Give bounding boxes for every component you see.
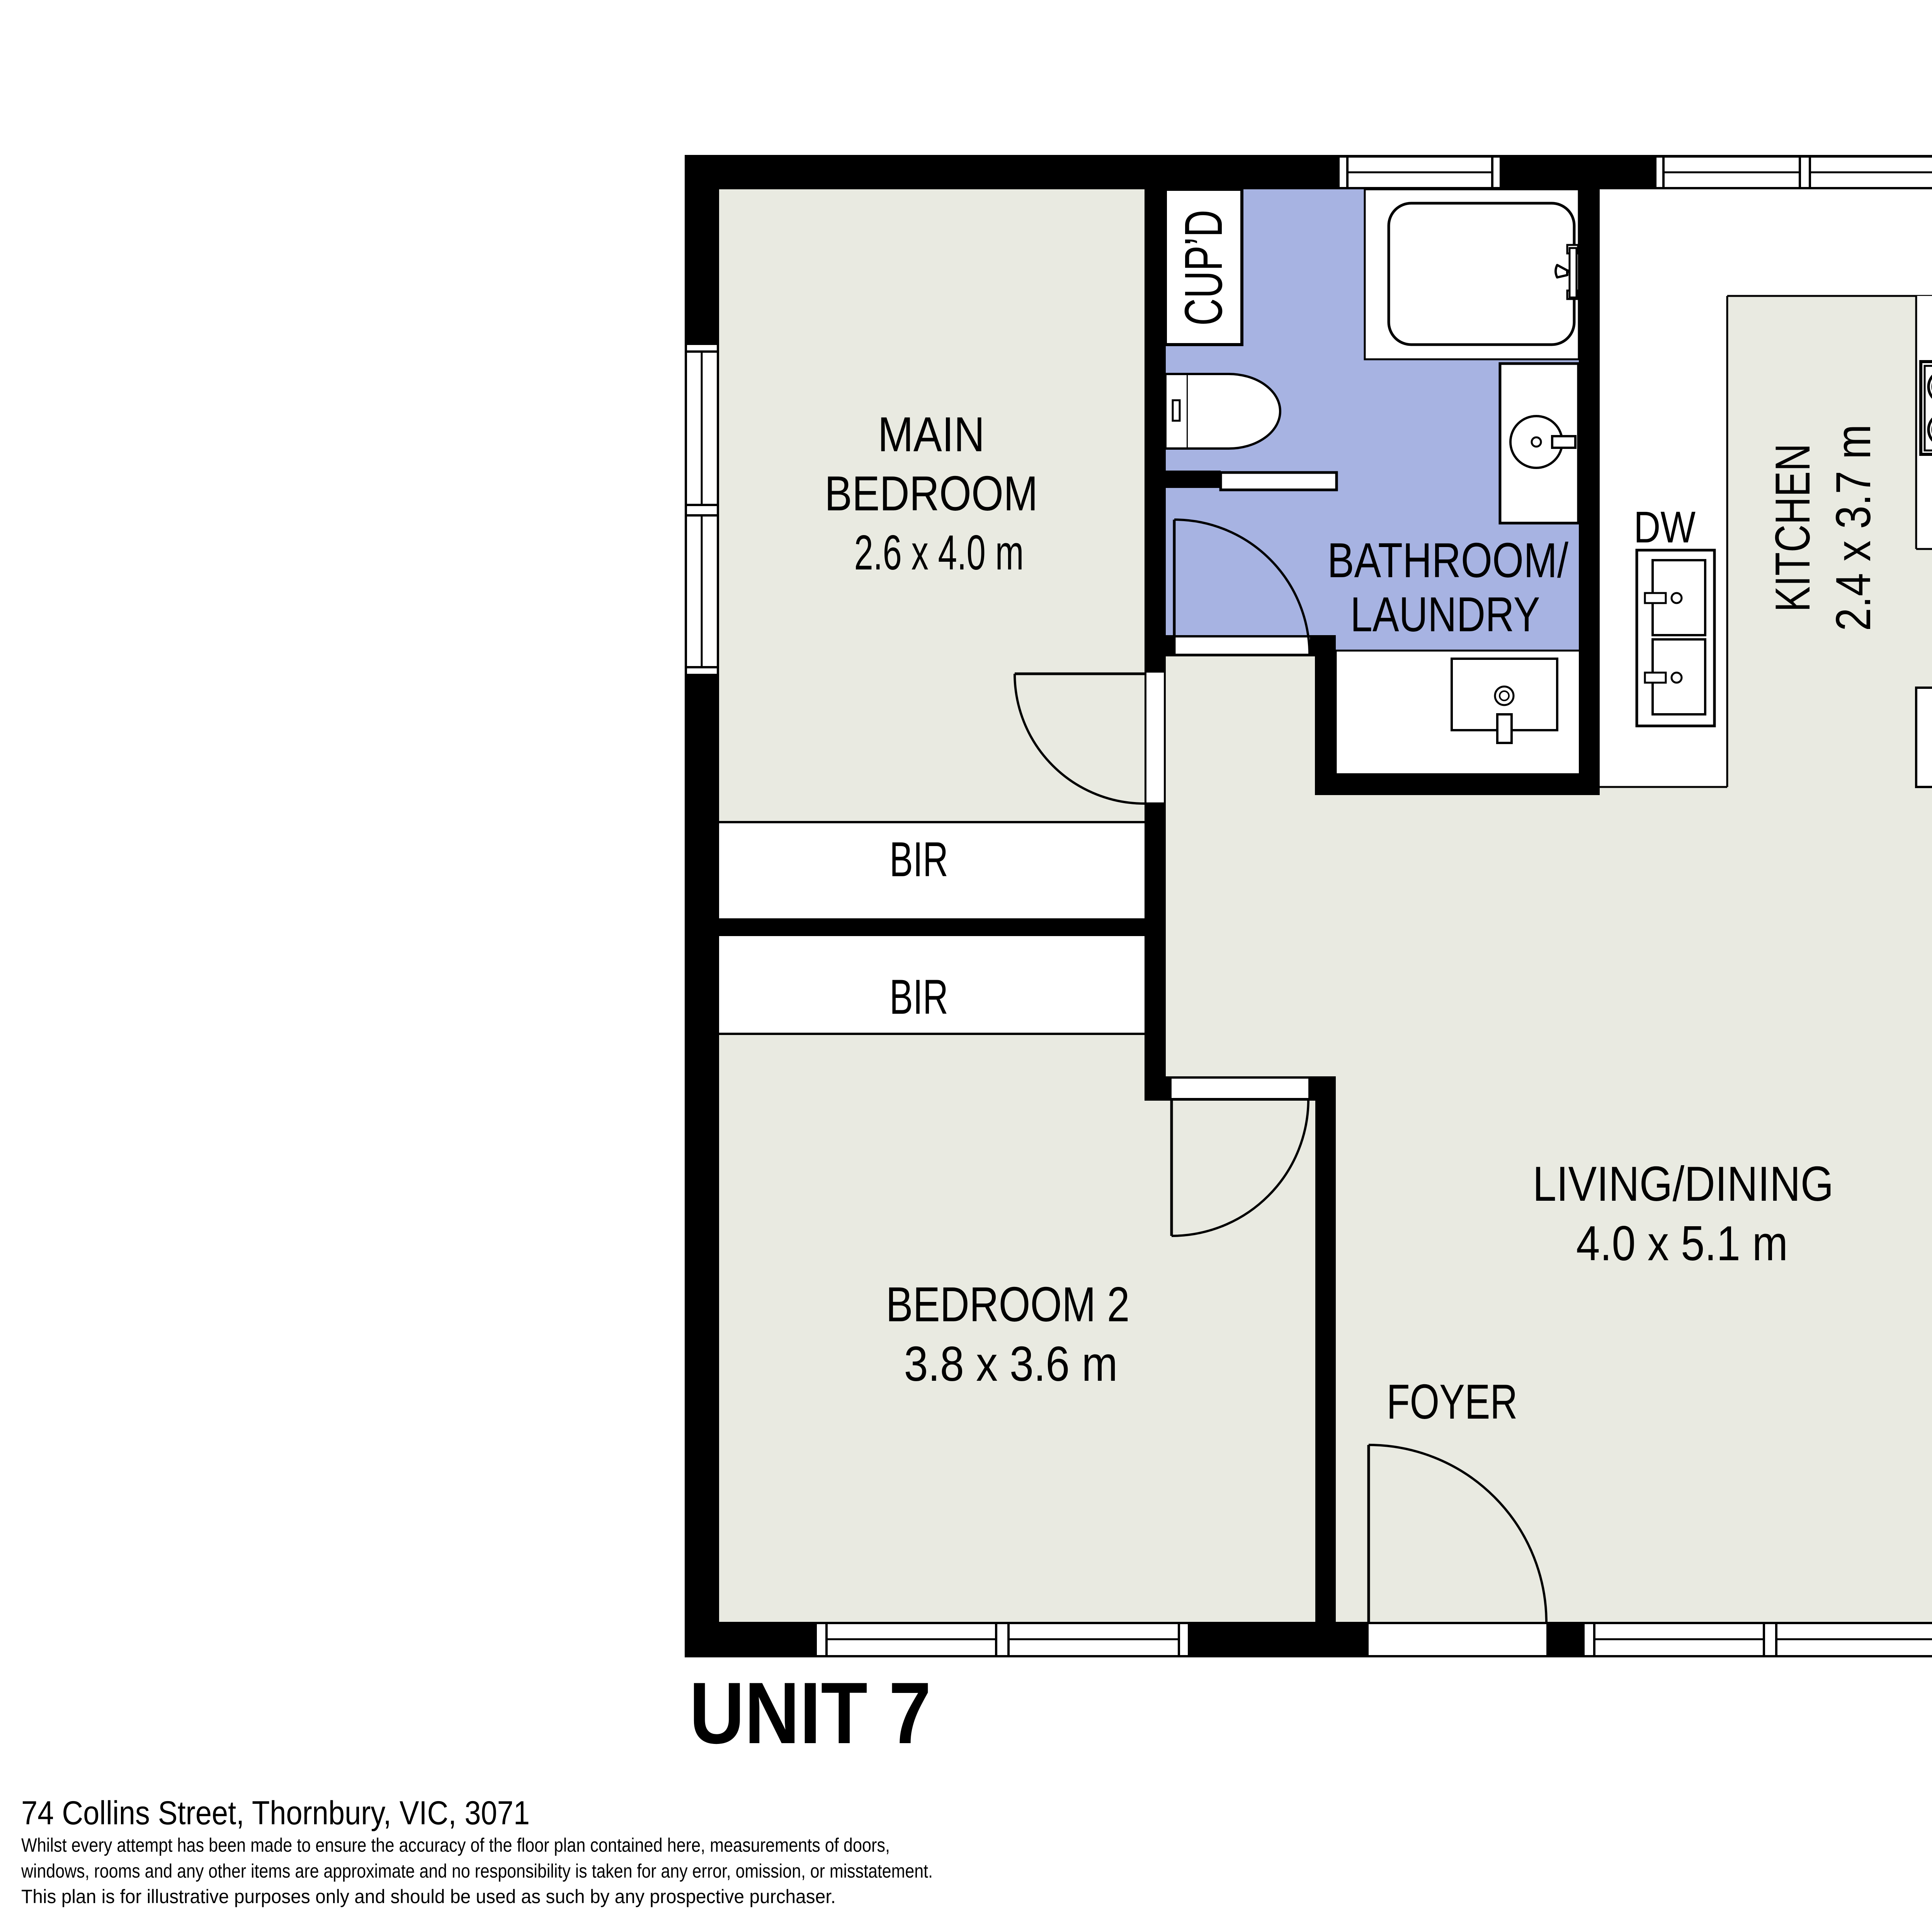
svg-text:MAIN: MAIN: [878, 407, 985, 462]
svg-text:LAUNDRY: LAUNDRY: [1350, 587, 1540, 642]
svg-text:windows, rooms and any other i: windows, rooms and any other items are a…: [21, 1860, 933, 1882]
svg-text:LIVING/DINING: LIVING/DINING: [1533, 1156, 1834, 1211]
svg-text:2.4 x 3.7 m: 2.4 x 3.7 m: [1826, 425, 1881, 631]
svg-text:4.0 x 5.1 m: 4.0 x 5.1 m: [1576, 1216, 1788, 1271]
svg-text:CUP’D: CUP’D: [1174, 210, 1233, 326]
svg-text:BIR: BIR: [889, 969, 948, 1024]
svg-text:BATHROOM/: BATHROOM/: [1327, 533, 1569, 588]
svg-text:BEDROOM 2: BEDROOM 2: [886, 1277, 1130, 1332]
svg-text:3.8 x 3.6 m: 3.8 x 3.6 m: [904, 1336, 1118, 1391]
svg-text:Whilst every attempt has been: Whilst every attempt has been made to en…: [21, 1834, 890, 1856]
svg-text:DW: DW: [1634, 503, 1696, 552]
svg-text:FOYER: FOYER: [1387, 1374, 1518, 1429]
svg-text:This plan is for illustrative: This plan is for illustrative purposes o…: [21, 1886, 836, 1907]
svg-text:BEDROOM: BEDROOM: [825, 466, 1038, 521]
svg-text:UNIT 7: UNIT 7: [689, 1664, 931, 1762]
svg-text:BIR: BIR: [889, 832, 948, 887]
svg-text:KITCHEN: KITCHEN: [1765, 444, 1820, 612]
svg-text:2.6 x 4.0 m: 2.6 x 4.0 m: [854, 525, 1024, 580]
svg-text:74 Collins Street, Thornbury,: 74 Collins Street, Thornbury, VIC, 3071: [21, 1795, 530, 1832]
